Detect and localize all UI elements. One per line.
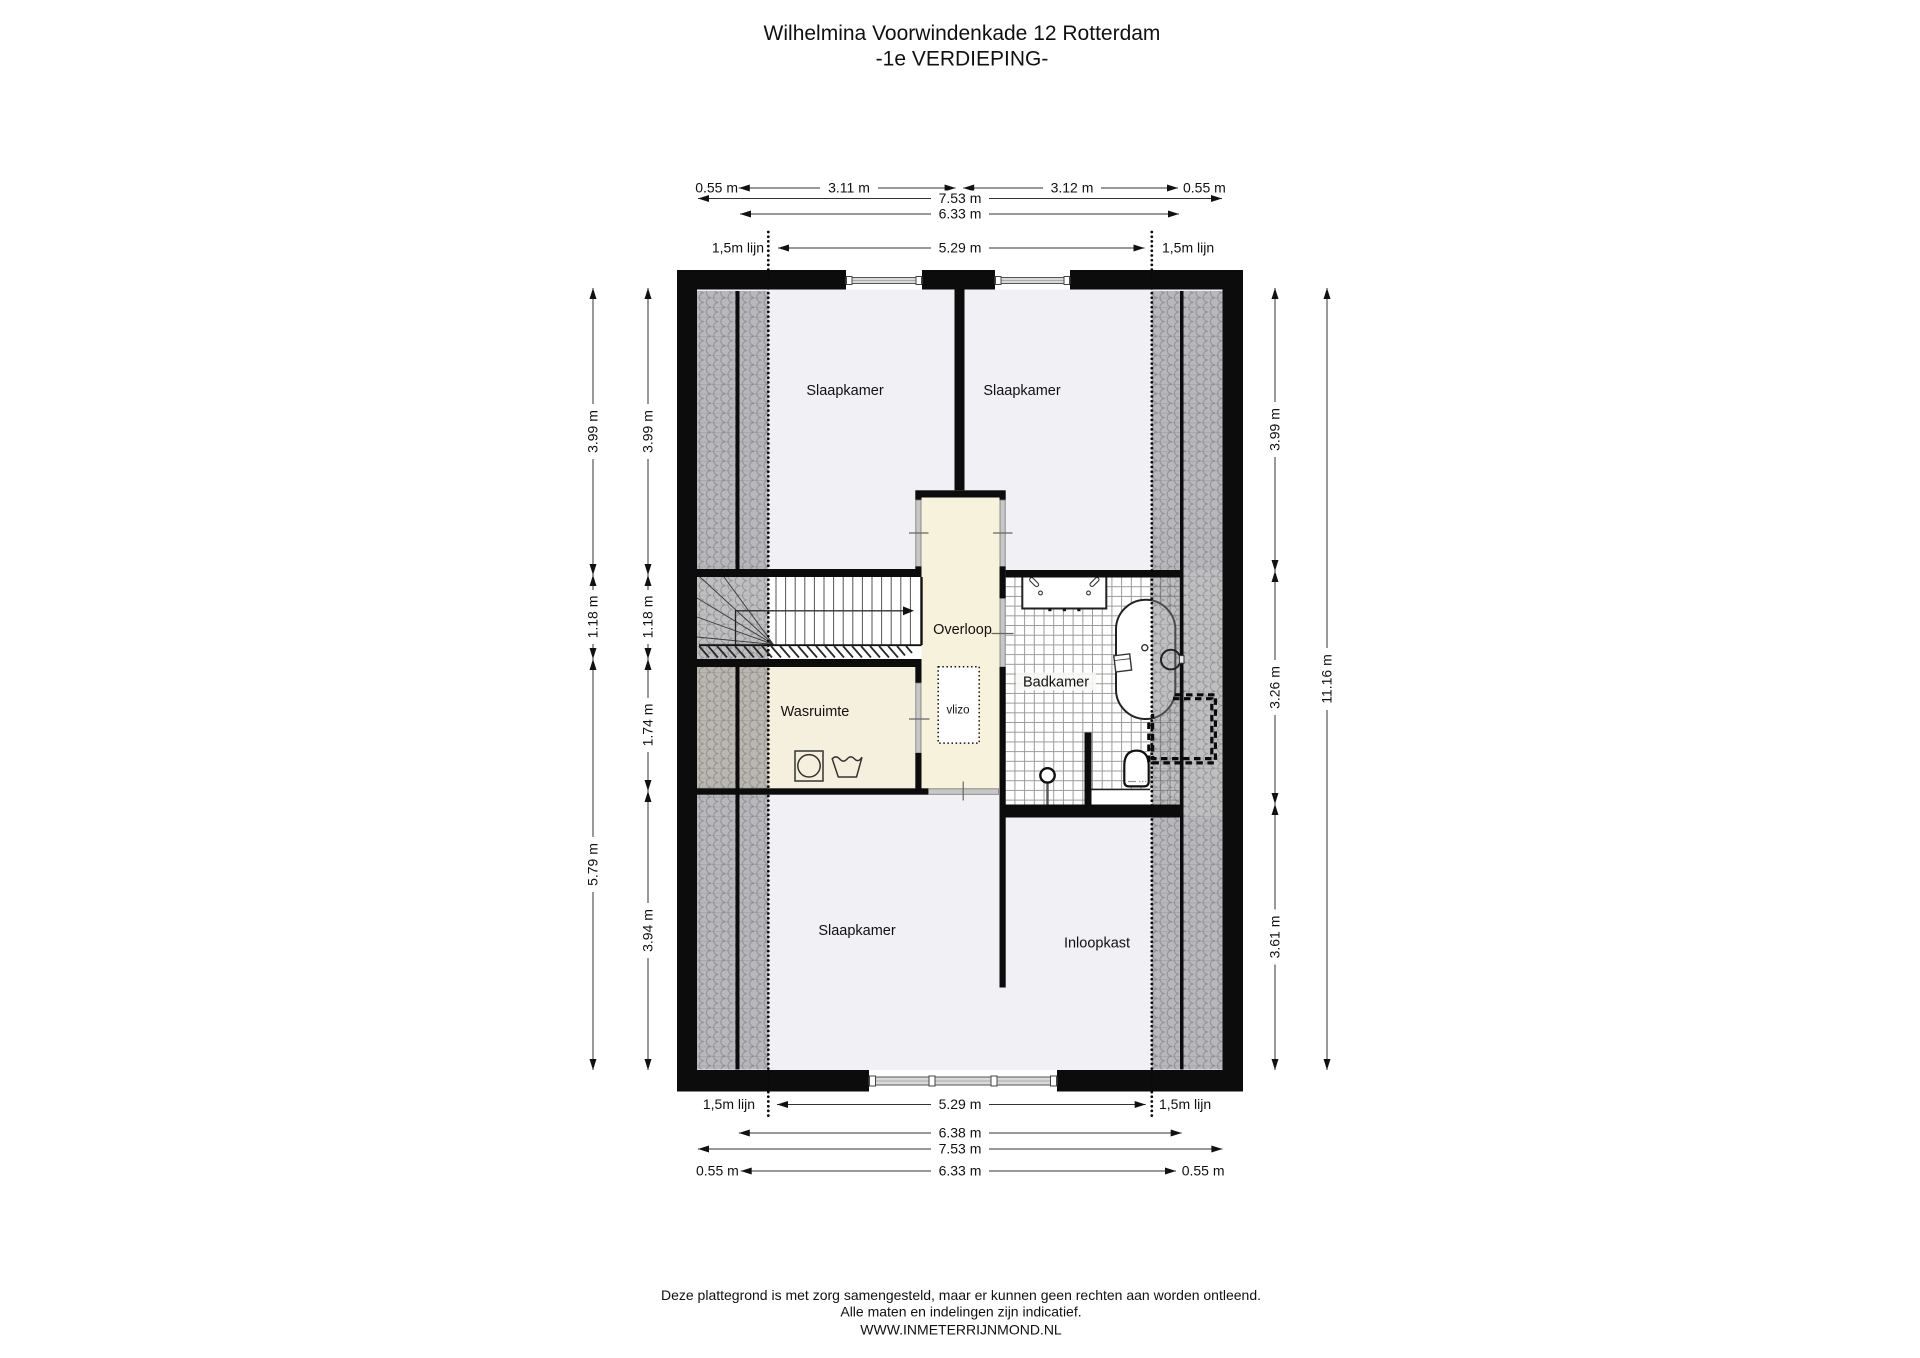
svg-text:1,5m lijn: 1,5m lijn [1162, 240, 1214, 256]
svg-text:3.11 m: 3.11 m [828, 180, 870, 196]
svg-text:3.99 m: 3.99 m [585, 410, 601, 453]
svg-text:1.18 m: 1.18 m [585, 596, 601, 639]
svg-text:1,5m lijn: 1,5m lijn [712, 240, 764, 256]
svg-text:Slaapkamer: Slaapkamer [983, 383, 1061, 399]
svg-text:6.38 m: 6.38 m [939, 1125, 982, 1141]
svg-text:5.29 m: 5.29 m [939, 1096, 982, 1112]
svg-text:0.55 m: 0.55 m [1182, 1163, 1225, 1179]
svg-text:5.29 m: 5.29 m [939, 240, 982, 256]
svg-text:7.53 m: 7.53 m [939, 190, 982, 206]
svg-text:6.33 m: 6.33 m [939, 206, 982, 222]
svg-text:5.79 m: 5.79 m [585, 843, 601, 886]
svg-text:WWW.INMETERRIJNMOND.NL: WWW.INMETERRIJNMOND.NL [860, 1322, 1062, 1338]
svg-text:0.55 m: 0.55 m [696, 1163, 739, 1179]
svg-text:3.26 m: 3.26 m [1267, 666, 1283, 709]
svg-text:Wasruimte: Wasruimte [781, 704, 850, 720]
svg-text:Badkamer: Badkamer [1023, 675, 1089, 691]
svg-text:6.33 m: 6.33 m [939, 1163, 982, 1179]
svg-text:3.94 m: 3.94 m [640, 909, 656, 952]
svg-text:3.12 m: 3.12 m [1051, 180, 1094, 196]
svg-text:Deze plattegrond is met zorg s: Deze plattegrond is met zorg samengestel… [661, 1287, 1261, 1303]
svg-text:1.18 m: 1.18 m [640, 596, 656, 639]
svg-text:3.61 m: 3.61 m [1267, 916, 1283, 959]
svg-text:-1e VERDIEPING-: -1e VERDIEPING- [876, 48, 1049, 71]
svg-text:Slaapkamer: Slaapkamer [818, 923, 896, 939]
svg-text:3.99 m: 3.99 m [1267, 408, 1283, 451]
svg-text:Slaapkamer: Slaapkamer [806, 383, 884, 399]
svg-text:1.74 m: 1.74 m [640, 704, 656, 747]
svg-text:1,5m lijn: 1,5m lijn [1159, 1096, 1211, 1112]
svg-text:Alle maten en indelingen zijn: Alle maten en indelingen zijn indicatief… [840, 1304, 1081, 1320]
svg-text:Inloopkast: Inloopkast [1064, 936, 1130, 952]
svg-text:0.55 m: 0.55 m [1183, 180, 1226, 196]
svg-text:Wilhelmina Voorwindenkade 12 R: Wilhelmina Voorwindenkade 12 Rotterdam [764, 22, 1161, 45]
svg-text:Overloop: Overloop [933, 622, 992, 638]
svg-text:0.55 m: 0.55 m [695, 180, 738, 196]
svg-text:11.16 m: 11.16 m [1319, 654, 1335, 704]
svg-text:3.99 m: 3.99 m [640, 410, 656, 453]
svg-text:1,5m lijn: 1,5m lijn [703, 1096, 755, 1112]
svg-text:7.53 m: 7.53 m [939, 1141, 982, 1157]
svg-text:vlizo: vlizo [946, 705, 969, 717]
